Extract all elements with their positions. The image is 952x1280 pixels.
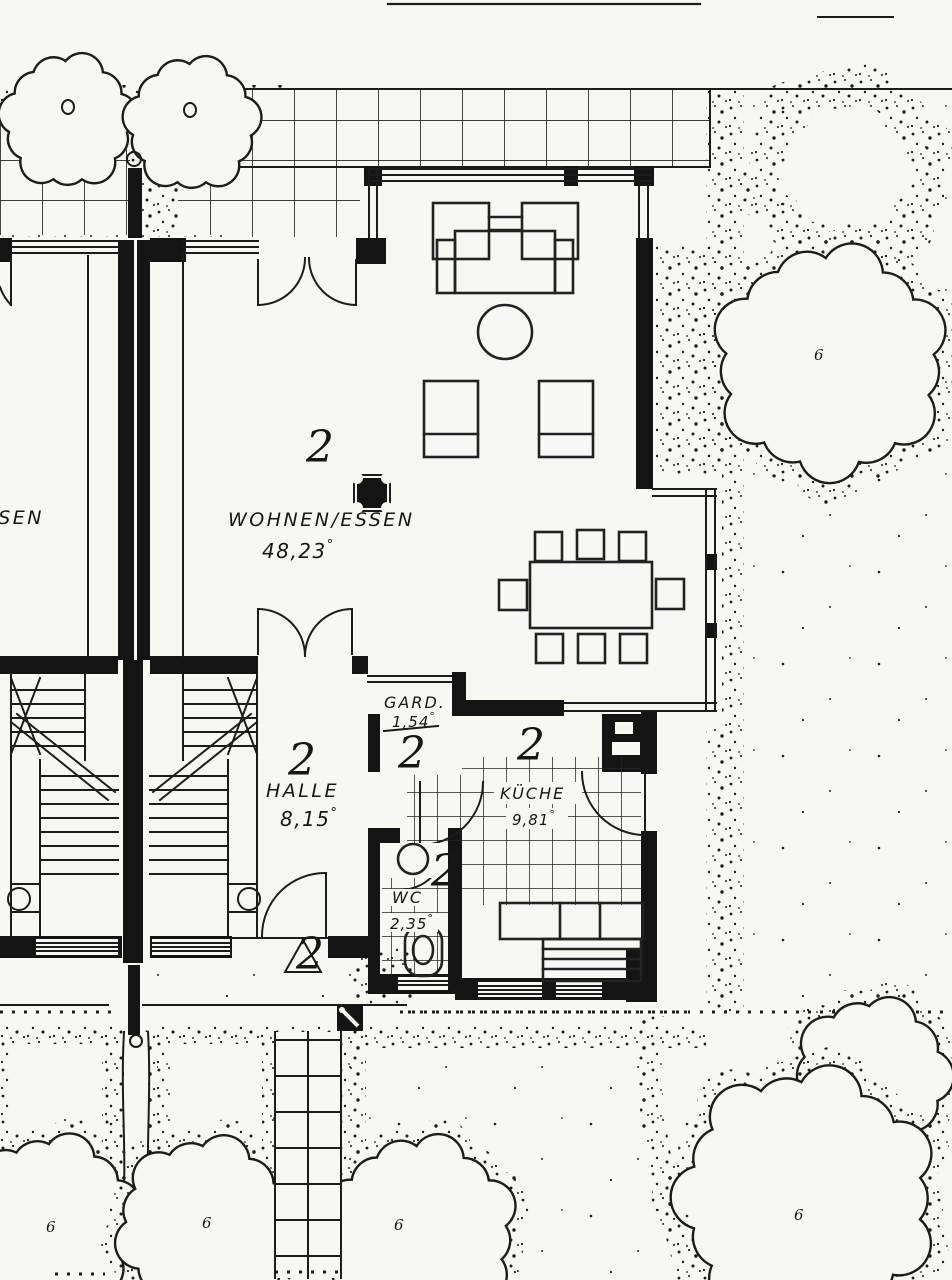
window-band	[12, 241, 118, 253]
radiator	[36, 939, 118, 955]
kitchen-tiles	[462, 757, 641, 905]
room-area-halle: 8,15°	[280, 806, 339, 831]
entrance-walkway	[275, 1032, 341, 1278]
radiator	[152, 939, 230, 955]
floor-plan-drawing: 6 6 6 6 6	[0, 0, 952, 1280]
mark-vestibule: 2	[397, 728, 426, 779]
dining-chair	[499, 580, 527, 610]
terrace-french-door	[0, 258, 356, 305]
room-label-kueche: KÜCHE	[500, 784, 565, 803]
vestibule-tiles	[407, 775, 462, 843]
room-area-wohnen-essen: 48,23°	[262, 538, 335, 563]
sofa-group	[433, 203, 578, 293]
tree-trunk-mark: 6	[394, 1216, 404, 1234]
kitchen-counter	[500, 903, 643, 939]
window-band	[639, 186, 648, 238]
garden-wall	[128, 168, 142, 238]
dining-table	[530, 562, 652, 628]
staircase-left-unit	[8, 674, 118, 936]
round-table	[478, 305, 532, 359]
room-label-wc: WC	[392, 888, 423, 907]
gard-shelf-line	[368, 676, 452, 682]
room-label-wohnen-essen: WOHNEN/ESSEN	[228, 509, 415, 531]
dining-chair	[578, 634, 605, 663]
window-striped	[478, 982, 542, 997]
dining-chair	[536, 634, 563, 663]
stair-break-line	[11, 714, 115, 800]
column-marker	[351, 472, 393, 514]
mark-wc: 2	[430, 846, 459, 897]
room-area-kueche: 9,81°	[512, 808, 556, 829]
armchair	[424, 381, 478, 457]
entrance-step-number: 2	[295, 929, 324, 980]
floor-plan-scan: 6 6 6 6 6	[0, 0, 952, 1280]
mark-living: 2	[305, 422, 334, 473]
room-area-wc: 2,35°	[390, 912, 434, 933]
armchair	[539, 381, 593, 457]
tree-trunk-mark: 6	[202, 1214, 212, 1232]
dining-chair	[577, 530, 604, 559]
gate-marker	[337, 1005, 363, 1031]
window-band	[368, 169, 650, 181]
wall-face-line	[88, 256, 183, 656]
entrance-step-marker: 2	[285, 929, 324, 980]
staircase-right-unit	[150, 674, 260, 936]
fence-wall-stub	[128, 965, 140, 1035]
hall-living-door	[258, 609, 352, 656]
dining-chair	[620, 634, 647, 663]
room-label-gard: GARD.	[384, 693, 446, 712]
tree-trunk-mark: 6	[794, 1206, 804, 1224]
window-striped	[556, 982, 602, 997]
dining-set	[499, 530, 684, 663]
tree-trunk-mark: 6	[814, 346, 824, 364]
dining-chair	[619, 532, 646, 561]
dining-chair	[535, 532, 562, 561]
neighbor-room-label: SSEN	[0, 507, 44, 529]
stair-break-line	[153, 714, 257, 800]
entrance-door	[262, 873, 326, 936]
mark-kitchen: 2	[516, 720, 545, 771]
dining-chair	[656, 579, 684, 609]
window-band	[184, 241, 258, 253]
tree-trunk-mark: 6	[46, 1218, 56, 1236]
bay-window-band	[564, 489, 716, 711]
mark-hall: 2	[287, 735, 316, 786]
living-room-furniture	[351, 203, 684, 663]
window-striped	[398, 977, 448, 990]
